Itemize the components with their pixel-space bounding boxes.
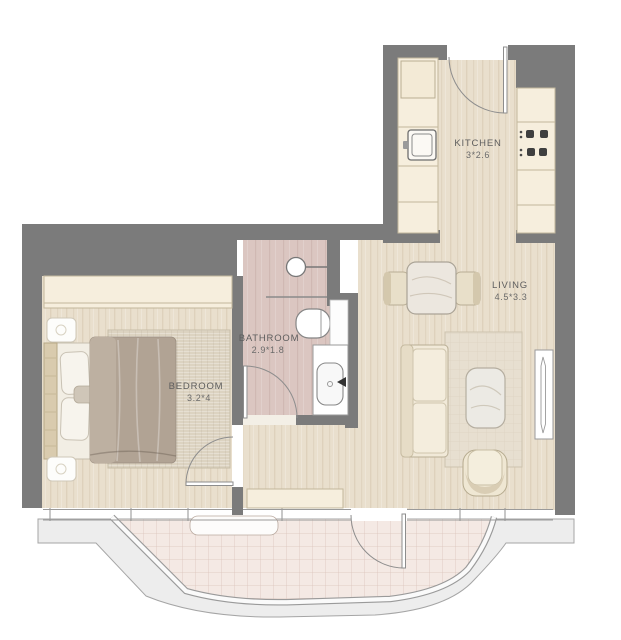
kitchen-label: KITCHEN: [454, 138, 501, 149]
wash-basin-icon: [287, 258, 306, 277]
wall: [383, 45, 398, 243]
chair-back: [473, 272, 480, 305]
wardrobe-icon: [44, 276, 232, 308]
kitchen-sink-icon: [403, 130, 436, 160]
coffee-table: [466, 368, 505, 428]
window-icon: [535, 350, 553, 439]
sofa: [401, 345, 448, 457]
floor-plan-svg: KITCHEN 3*2.6 BATHROOM 2.9*1.8: [0, 0, 621, 640]
pillow: [60, 398, 89, 441]
bedroom-dimensions: 3.2*4: [187, 393, 211, 403]
bedroom-label: BEDROOM: [169, 381, 224, 392]
floor-plan: KITCHEN 3*2.6 BATHROOM 2.9*1.8: [0, 0, 621, 640]
entry-door-opening: [447, 45, 508, 60]
sofa-cushion: [413, 349, 446, 401]
window-pane: [541, 357, 546, 433]
toilet-icon: [296, 309, 330, 338]
door-leaf: [402, 514, 406, 568]
fridge-icon: [401, 61, 435, 98]
bed: [44, 337, 176, 463]
wall: [22, 240, 237, 276]
wall: [516, 60, 556, 88]
sofa-back: [401, 345, 413, 457]
door-leaf: [504, 47, 508, 113]
kitchen-dimensions: 3*2.6: [466, 150, 490, 160]
duvet: [90, 337, 176, 463]
wall: [232, 487, 243, 515]
bathroom-label: BATHROOM: [239, 333, 300, 344]
wall: [555, 45, 575, 515]
dining-table: [407, 262, 456, 314]
vanity-basin-icon: [317, 363, 343, 405]
hall-cabinet: [247, 489, 343, 508]
door-leaf: [244, 366, 248, 418]
hallway: [247, 489, 343, 508]
bathroom-door-threshold: [243, 415, 296, 425]
bedroom-door-opening: [232, 425, 243, 487]
wall: [22, 224, 398, 240]
balcony: [38, 508, 574, 617]
armchair-seat: [468, 450, 502, 485]
bathroom-dimensions: 2.9*1.8: [252, 345, 285, 355]
nightstand: [47, 318, 76, 342]
balcony-mat: [190, 516, 278, 535]
kitchen-counter-right: [517, 88, 555, 233]
wall: [22, 240, 42, 508]
nightstand: [47, 457, 76, 481]
headboard: [44, 343, 57, 459]
armchair: [463, 450, 507, 496]
living-label: LIVING: [492, 280, 528, 291]
sofa-cushion: [413, 403, 446, 453]
door-leaf: [186, 482, 233, 486]
living-dimensions: 4.5*3.3: [495, 292, 528, 302]
wall: [232, 276, 243, 425]
bedroom: BEDROOM 3.2*4: [44, 276, 243, 487]
balcony-door-opening: [351, 508, 407, 521]
chair-back: [384, 272, 391, 305]
kitchen-living-passage: [440, 230, 516, 244]
vanity: [313, 345, 348, 415]
